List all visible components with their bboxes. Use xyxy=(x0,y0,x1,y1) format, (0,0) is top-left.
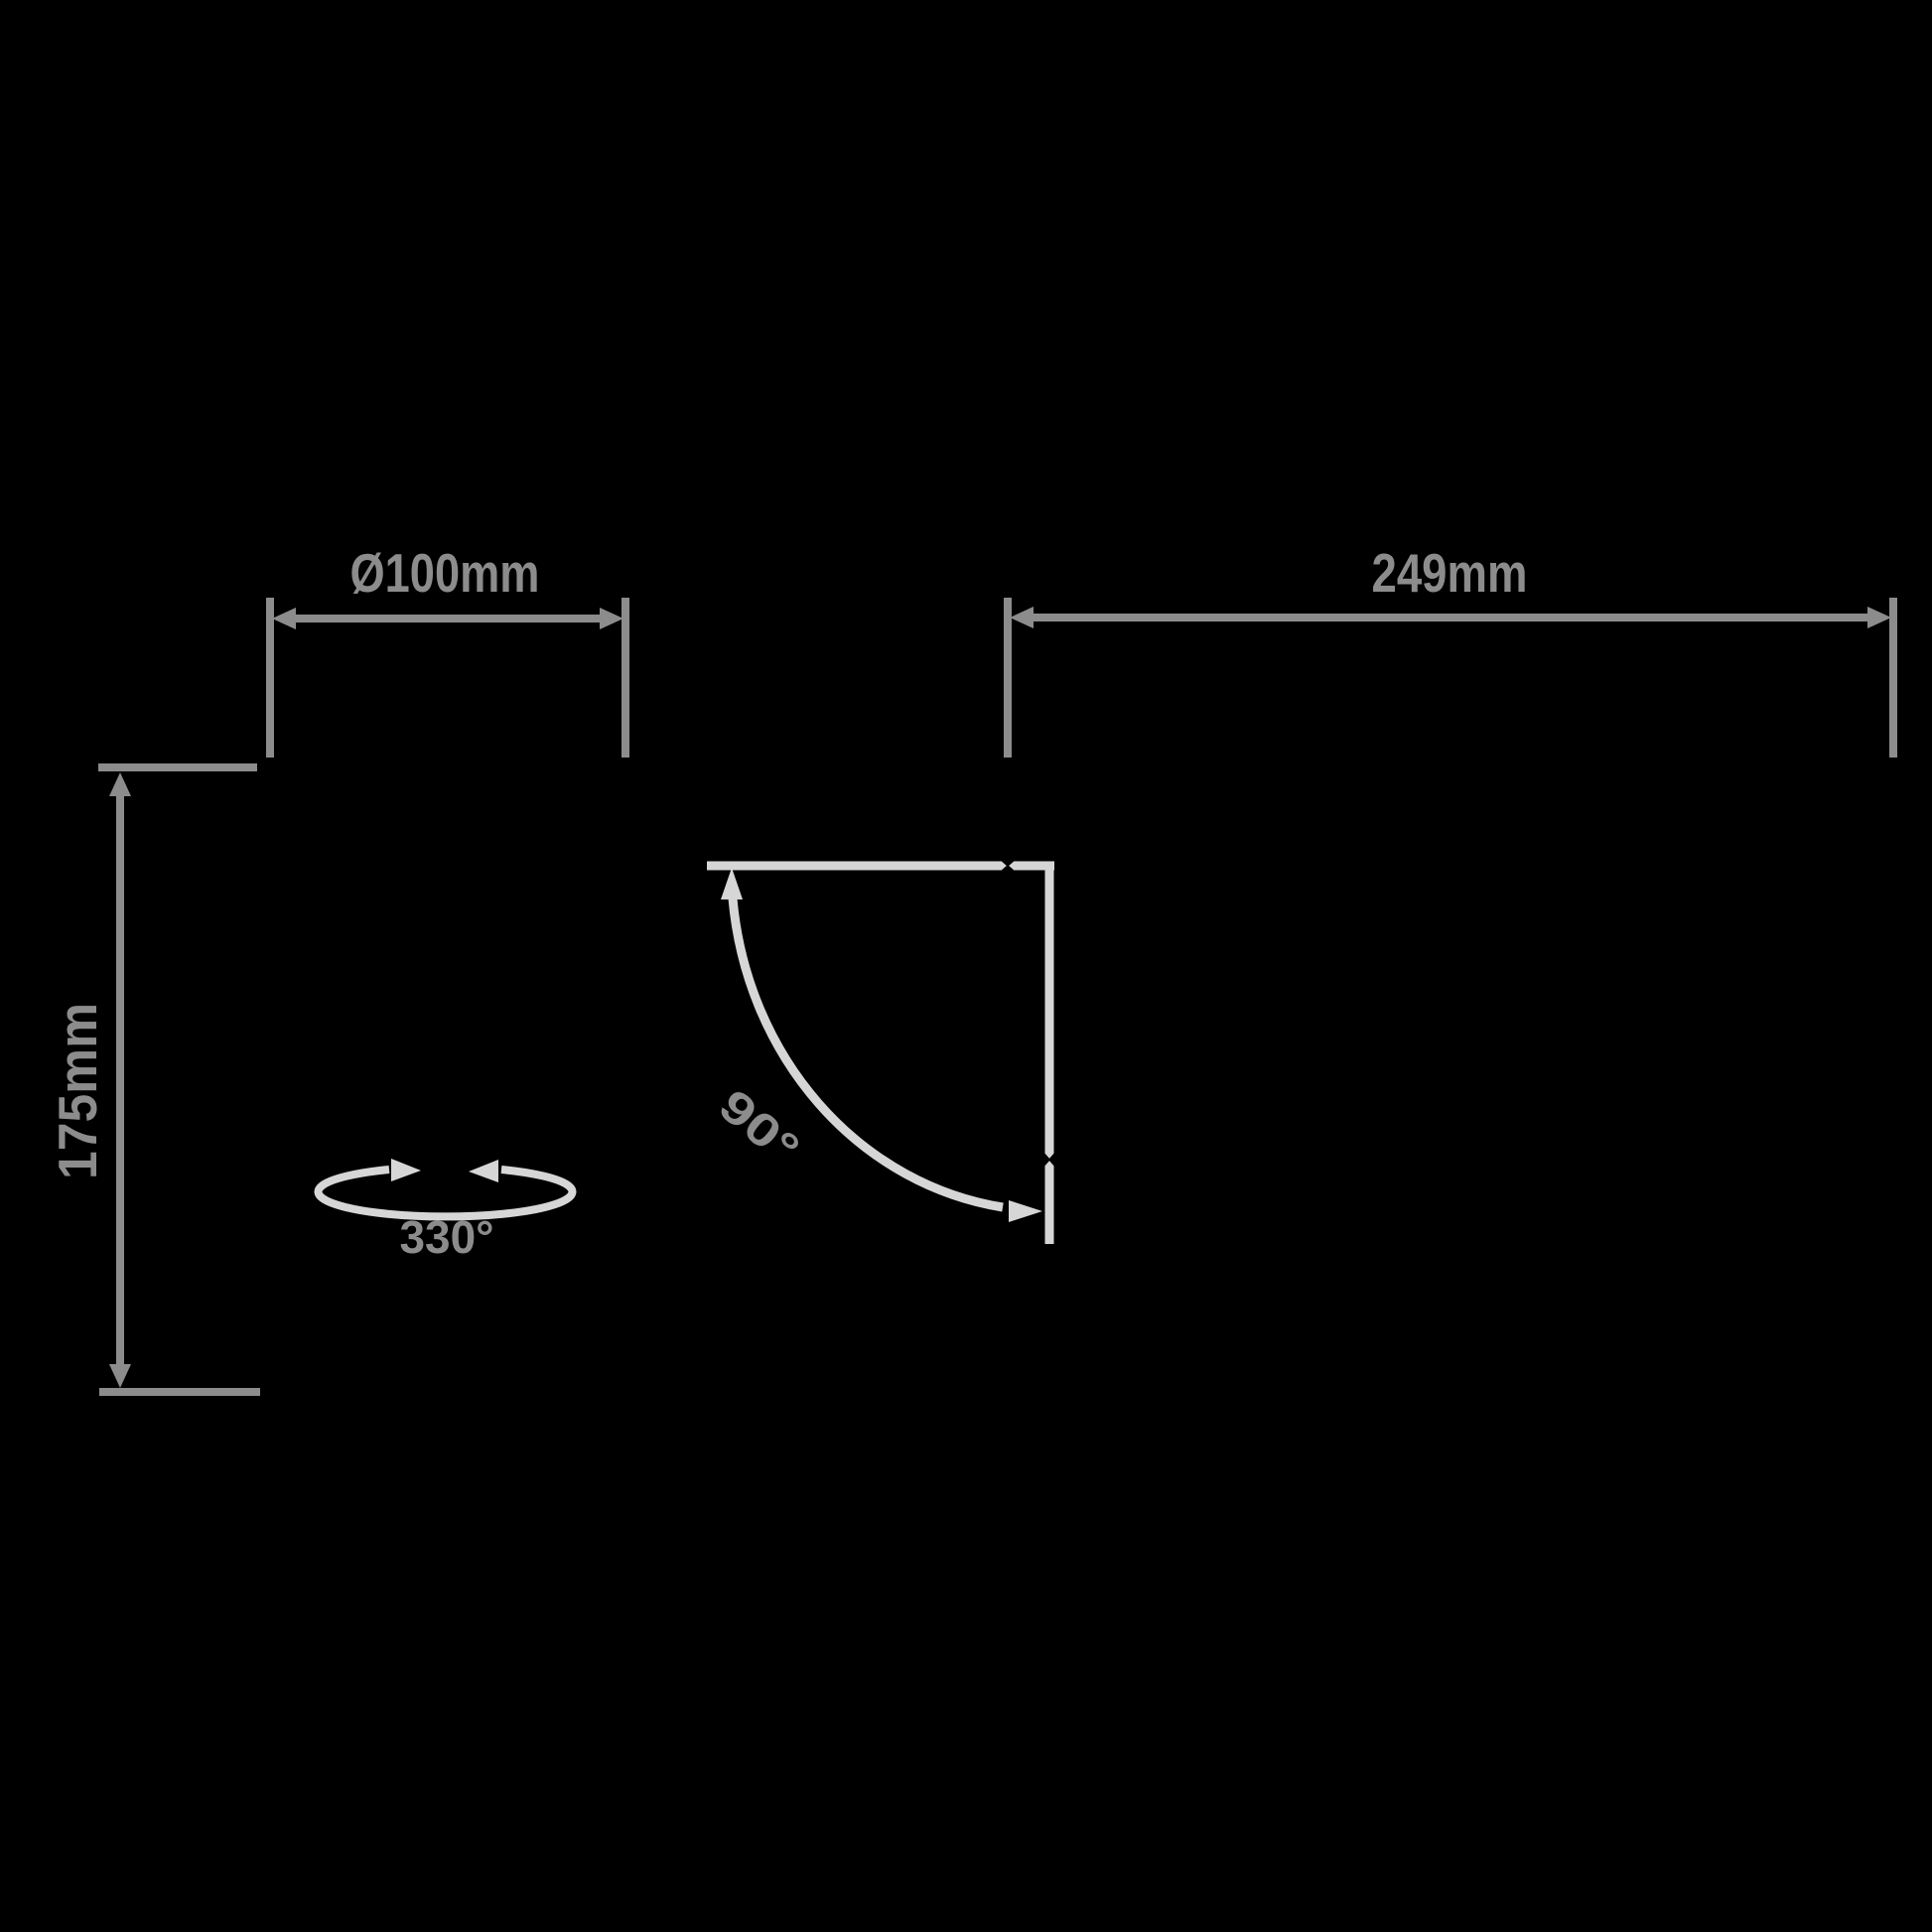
projection-label: 249mm xyxy=(1372,542,1528,604)
dimension-diagram: Ø100mm 249mm 175mm 330° 90° xyxy=(0,0,1932,1932)
diameter-label: Ø100mm xyxy=(350,542,540,604)
height-label: 175mm xyxy=(47,1003,108,1179)
diagram-background xyxy=(0,0,1932,1932)
rotation-angle-label: 330° xyxy=(400,1211,494,1263)
